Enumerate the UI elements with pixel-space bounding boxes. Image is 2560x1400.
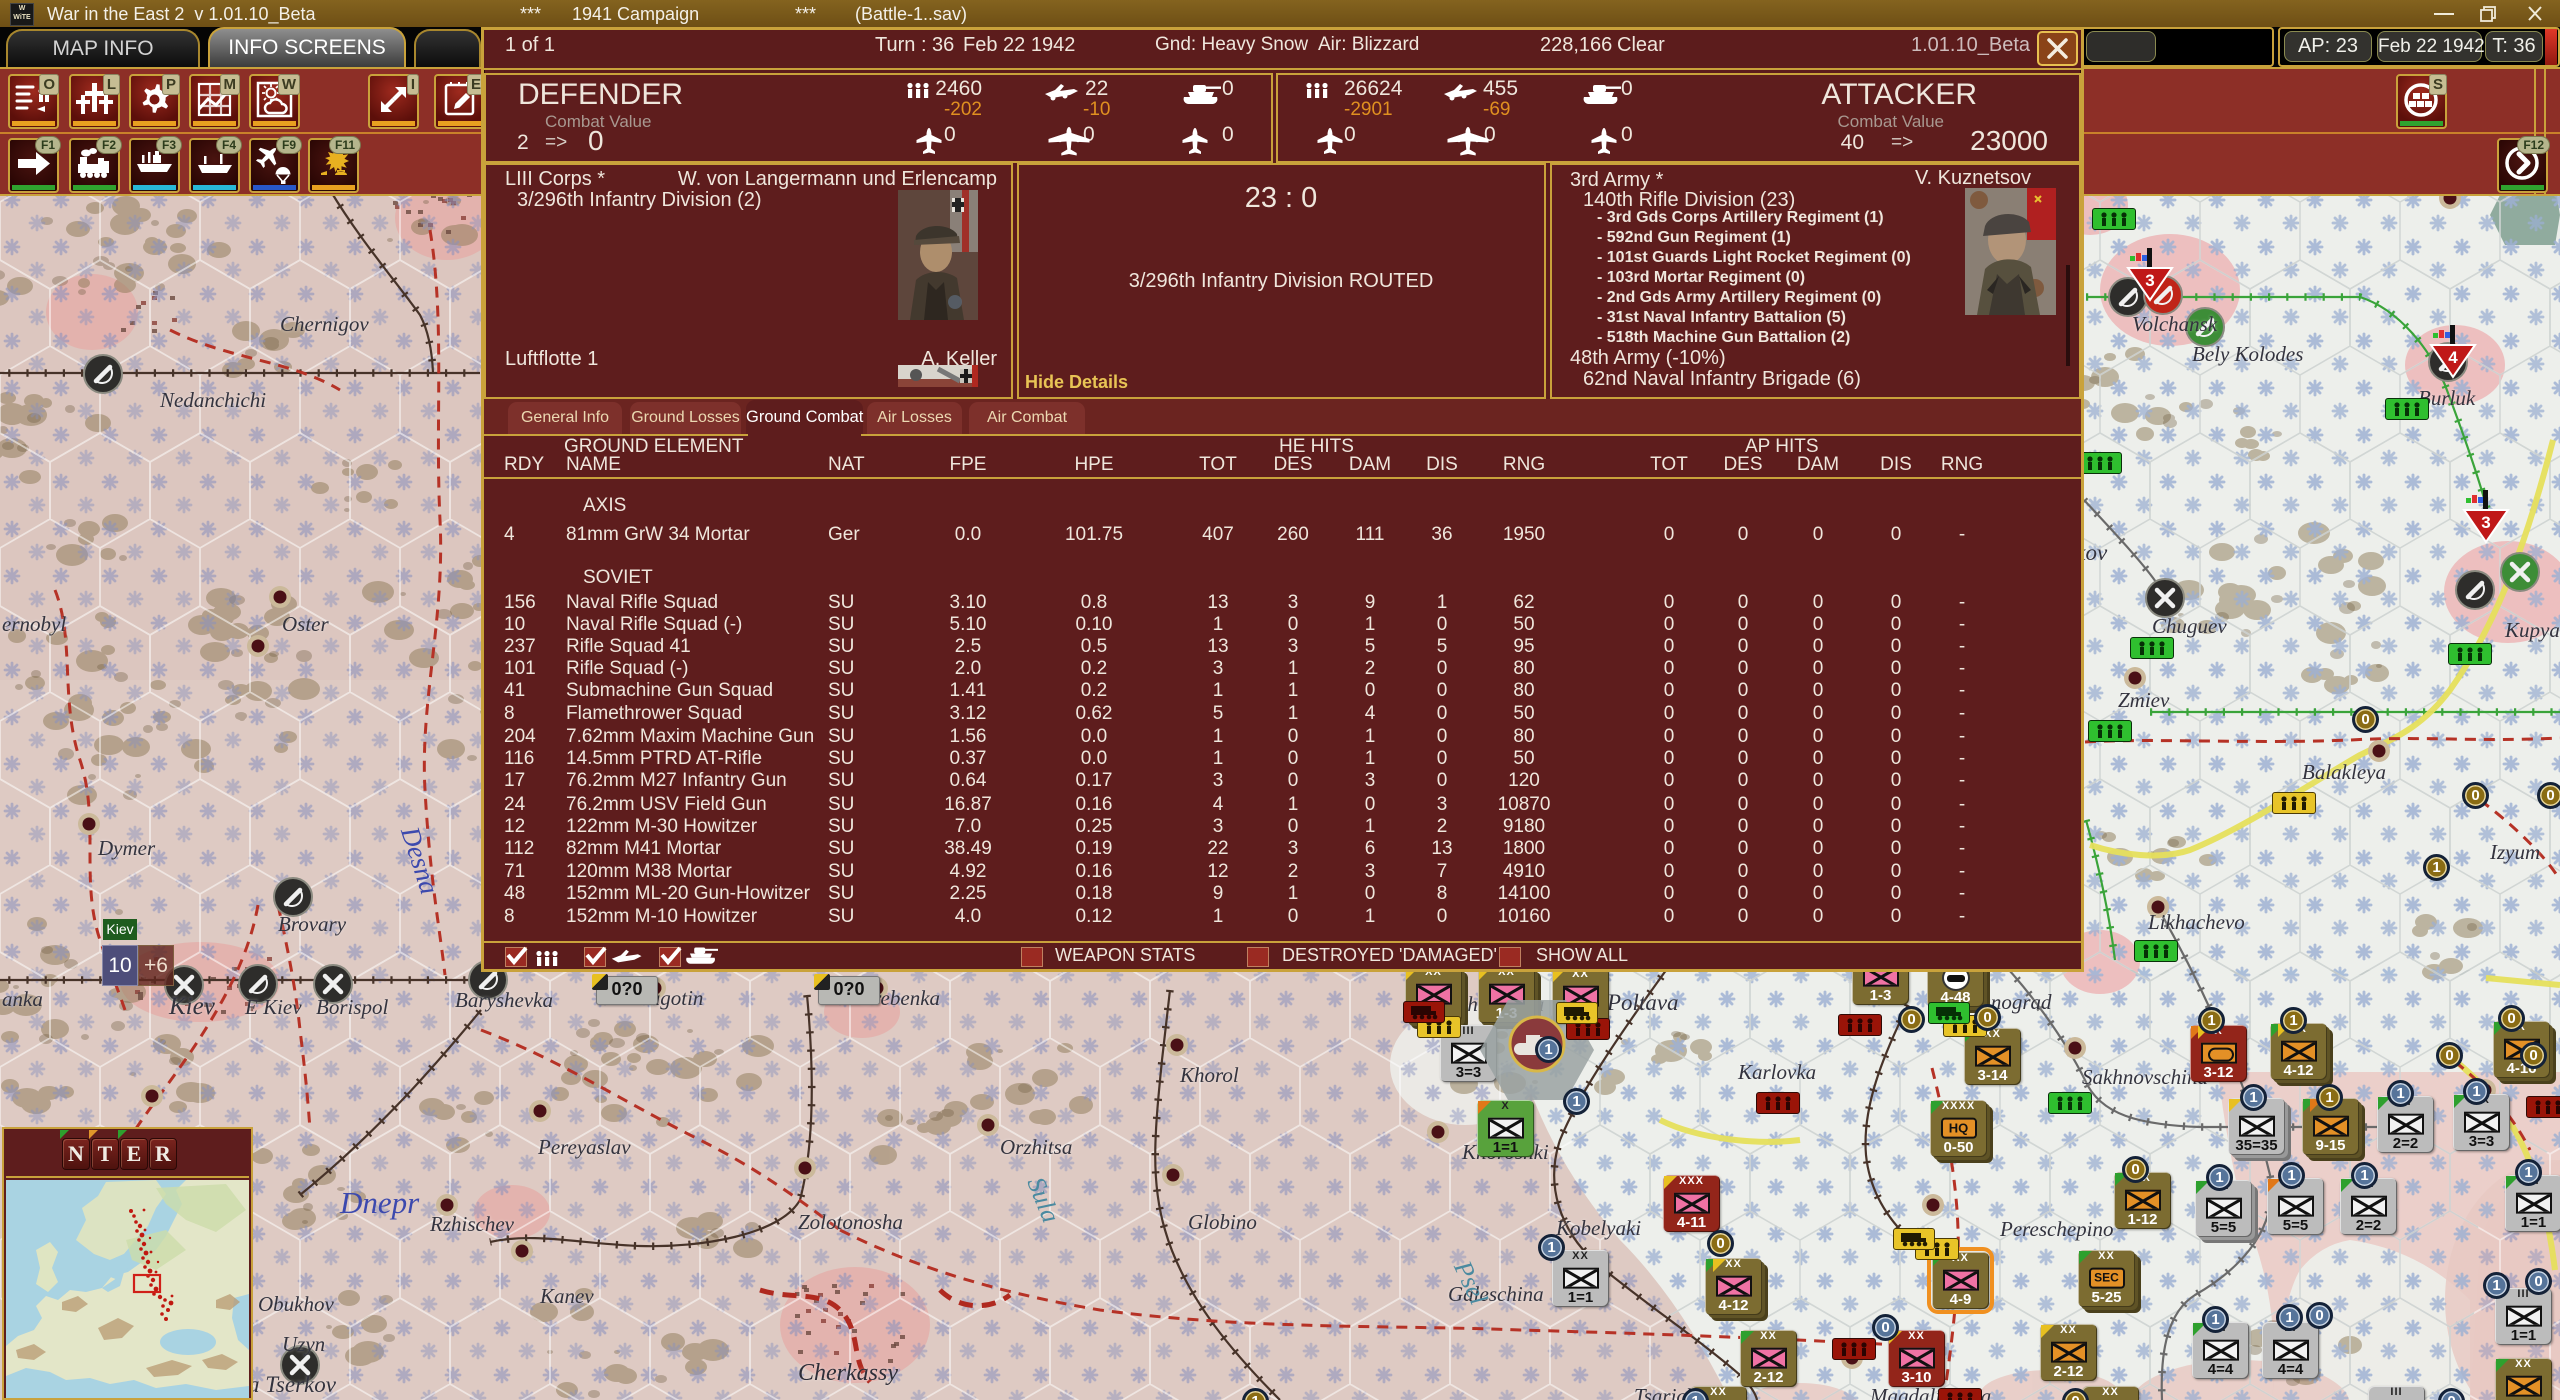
svg-text:4: 4 xyxy=(2448,348,2458,367)
svg-text:3: 3 xyxy=(2145,271,2154,290)
svg-text:3: 3 xyxy=(2481,513,2490,532)
